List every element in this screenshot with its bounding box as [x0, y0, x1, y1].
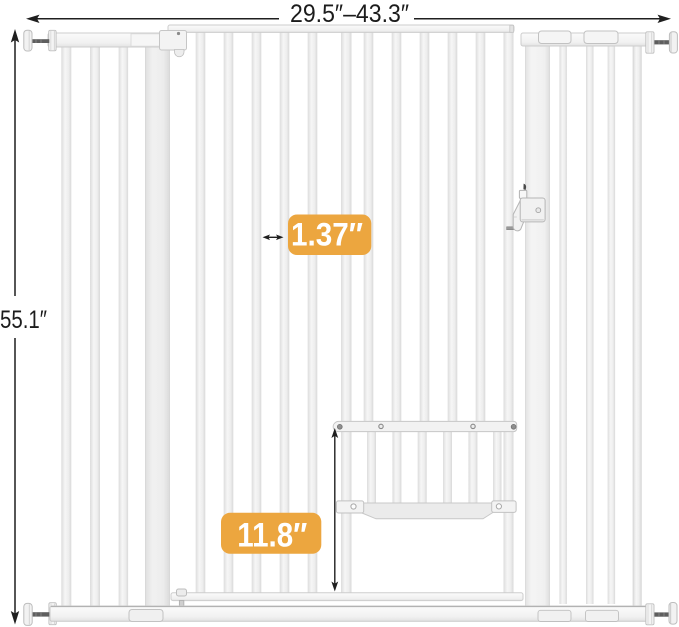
- svg-text:1.37″: 1.37″: [291, 217, 363, 253]
- svg-text:29.5″–43.3″: 29.5″–43.3″: [290, 0, 409, 28]
- svg-text:55.1″: 55.1″: [0, 306, 47, 334]
- svg-text:11.8″: 11.8″: [237, 517, 307, 555]
